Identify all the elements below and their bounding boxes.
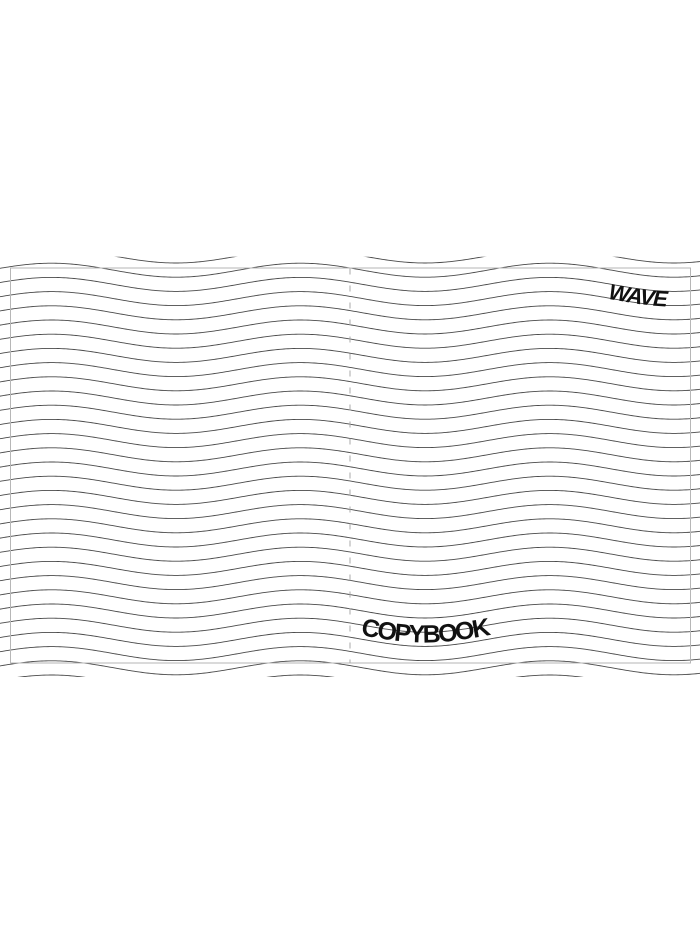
cover-title-text: COPYBOOK [360,613,493,649]
wave-line [0,675,700,689]
wave-line [0,647,700,661]
cover-title: COPYBOOK [360,613,493,649]
wave-pattern [0,249,700,689]
cover-spread-artwork: WAVE COPYBOOK [0,0,700,933]
cover-spread-page: WAVE COPYBOOK [0,0,700,933]
brand-logo-text: WAVE [607,279,670,312]
brand-logo: WAVE [607,279,670,312]
wave-line [0,249,700,263]
